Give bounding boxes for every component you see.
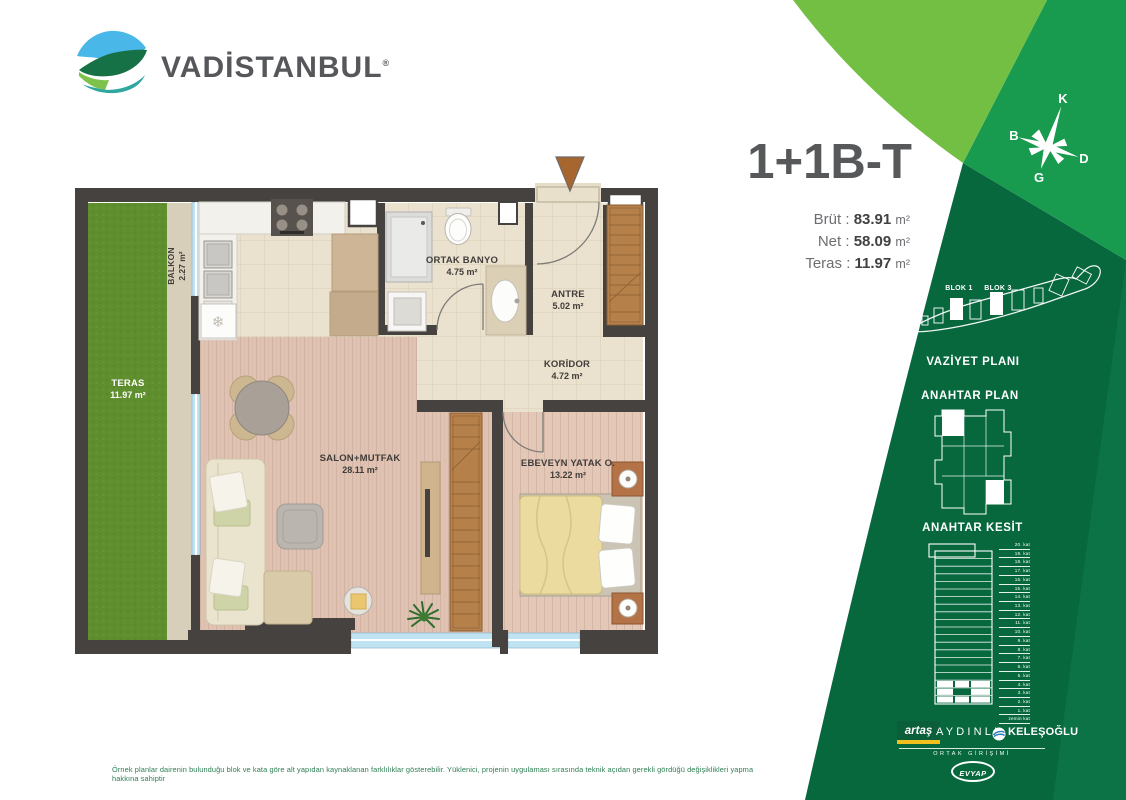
evyap-logo: EVYAP (951, 761, 995, 782)
kesit-floor-list: 20. kat19. kat18. kat17. kat16. kat15. k… (999, 541, 1030, 724)
kesit-floor-row: 7. kat (999, 654, 1030, 663)
wall (645, 188, 658, 654)
kesit-floor-row: 14. kat (999, 593, 1030, 602)
joint-venture-label: ORTAK GİRİŞİMİ (899, 751, 1045, 757)
compass-label-north: K (1058, 91, 1068, 106)
wall (188, 630, 351, 654)
wall (75, 188, 88, 654)
sink-basin-inner (207, 244, 229, 265)
room-area-bedroom: 13.22 m² (550, 470, 586, 480)
sink-basin-inner (207, 274, 229, 295)
wall (492, 400, 503, 647)
room-area: 2.27 m² (177, 251, 187, 280)
kesit-floor-row: 8. kat (999, 646, 1030, 655)
lamp-center (626, 477, 631, 482)
site-building (1034, 288, 1043, 303)
coffee-table (277, 504, 323, 549)
shaft-box (499, 202, 517, 224)
lamp-center (626, 606, 631, 611)
key-plan-unit-highlight (986, 480, 1004, 504)
key-section-tower (925, 540, 1000, 710)
kitchen-cabinet (332, 234, 378, 291)
kesit-floor-row: 5. kat (999, 672, 1030, 681)
unit-metrics: Brüt : 83.91 m² Net : 58.09 m² Teras : 1… (690, 209, 910, 275)
stove (271, 199, 313, 236)
kesit-floor-row: 17. kat (999, 567, 1030, 576)
room-name-teras: TERAS (111, 378, 144, 389)
bath-sink (492, 280, 519, 322)
burner (297, 205, 308, 216)
highlight-block (971, 681, 990, 687)
disclaimer-text: Örnek planlar dairenin bulunduğu blok ve… (112, 765, 760, 783)
metric-unit: m² (895, 235, 910, 249)
room-area-banyo: 4.75 m² (446, 267, 477, 277)
site-plan-title: VAZİYET PLANI (908, 356, 1038, 368)
highlight-block (937, 689, 953, 695)
burner (277, 205, 288, 216)
kesit-floor-row: 9. kat (999, 637, 1030, 646)
kesit-floor-row: 19. kat (999, 550, 1030, 559)
highlight-block (955, 696, 969, 702)
metric-label: Brüt : (814, 211, 850, 228)
kesit-floor-row: 20. kat (999, 541, 1030, 550)
compass-label-south: G (1034, 170, 1044, 185)
room-name-antre: ANTRE (551, 289, 585, 300)
plant-pot (420, 613, 429, 622)
stove-knobs (280, 231, 304, 234)
washing-machine-door (394, 298, 421, 325)
tower-highlight-floors (937, 681, 990, 703)
room-name-banyo: ORTAK BANYO (426, 255, 498, 266)
highlight-block (955, 681, 969, 687)
kitchen-cabinet (330, 292, 378, 336)
room-name-koridor: KORİDOR (544, 359, 590, 370)
tower-floor-lines (935, 559, 992, 696)
key-plan-core (964, 446, 986, 476)
room-name-salon: SALON+MUTFAK (320, 453, 401, 464)
burner (297, 220, 308, 231)
side-table-tray (351, 594, 366, 609)
kesit-floor-row: 4. kat (999, 681, 1030, 690)
site-boundary (908, 266, 1100, 332)
metric-row-brut: Brüt : 83.91 m² (690, 209, 910, 231)
kesit-floor-row: 1. kat (999, 707, 1030, 716)
sofa-chaise (264, 571, 312, 624)
wall (417, 400, 503, 412)
wall (603, 325, 645, 337)
brochure-page: VADİSTANBUL® (0, 0, 1126, 800)
kelesoglu-logo: KELEŞOĞLU (1008, 726, 1078, 738)
metric-row-net: Net : 58.09 m² (690, 231, 910, 253)
metric-value: 58.09 (854, 233, 892, 250)
kesit-floor-row: 2. kat (999, 698, 1030, 707)
tv (425, 489, 430, 557)
faucet (515, 299, 520, 304)
highlight-block (937, 696, 953, 702)
aydinli-logo: AYDINLI (936, 726, 1000, 738)
site-plan-drawing (898, 262, 1116, 354)
joint-venture-divider (899, 748, 1045, 749)
room-area-teras: 11.97 m² (110, 390, 146, 400)
artas-logo-text: artaş (905, 725, 933, 737)
room-label-balkon: BALKON 2.27 m² (166, 247, 187, 285)
kesit-floor-row: 11. kat (999, 619, 1030, 628)
kelesoglu-globe-icon (992, 727, 1006, 741)
metric-label: Teras : (805, 255, 850, 272)
kesit-floor-row: 18. kat (999, 558, 1030, 567)
highlight-block (971, 696, 990, 702)
bed-pillow (598, 504, 635, 545)
dining-table (235, 381, 289, 435)
kesit-floor-row: 6. kat (999, 663, 1030, 672)
key-plan-unit-highlight (942, 410, 964, 436)
shaft-box (349, 199, 377, 226)
bed-pillow (598, 548, 635, 589)
shower-drain (421, 221, 425, 225)
compass-label-west: B (1009, 128, 1018, 143)
tv-console (421, 462, 440, 594)
kesit-floor-row: 13. kat (999, 602, 1030, 611)
highlight-block (971, 689, 990, 695)
compass-label-east: D (1079, 151, 1088, 166)
metric-row-teras: Teras : 11.97 m² (690, 253, 910, 275)
unit-type-title: 1+1B-T (740, 138, 912, 187)
wall (543, 400, 645, 412)
kesit-floor-row: 10. kat (999, 628, 1030, 637)
room-area-salon: 28.11 m² (342, 465, 378, 475)
compass-star (1011, 97, 1091, 179)
metric-unit: m² (895, 213, 910, 227)
evyap-logo-text: EVYAP (959, 769, 986, 778)
site-building-blok1 (950, 298, 963, 320)
site-building (1072, 267, 1091, 284)
room-area-koridor: 4.72 m² (551, 371, 582, 381)
entrance-door-slab (537, 187, 599, 202)
shower-tray (391, 217, 427, 277)
site-building-blok3 (990, 292, 1003, 315)
bed-blanket (520, 496, 602, 594)
key-section-title: ANAHTAR KESİT (905, 522, 1040, 534)
salon-wardrobe (450, 413, 482, 631)
highlight-block (937, 681, 953, 687)
kesit-floor-row: 16. kat (999, 576, 1030, 585)
kesit-floor-row: 12. kat (999, 611, 1030, 620)
room-area-antre: 5.02 m² (552, 301, 583, 311)
site-building (1012, 290, 1024, 310)
burner (277, 220, 288, 231)
artas-logo: artaş (897, 721, 940, 740)
teras-floor (87, 203, 167, 645)
wall (191, 555, 200, 630)
metric-value: 83.91 (854, 211, 892, 228)
artas-logo-underline (897, 740, 940, 744)
key-plan-title: ANAHTAR PLAN (905, 390, 1035, 402)
wall (580, 630, 658, 654)
wall (603, 205, 607, 325)
room-name-bedroom: EBEVEYN YATAK O. (521, 458, 615, 469)
key-plan-drawing (928, 406, 1018, 518)
toilet (445, 214, 471, 245)
kesit-floor-row: zemin kat (999, 715, 1030, 724)
snowflake-icon: ❄ (212, 314, 225, 331)
metric-value: 11.97 (855, 255, 892, 272)
sofa-pillow (209, 471, 248, 512)
sofa-pillow (209, 558, 246, 597)
compass-icon: K B D G (1005, 90, 1115, 195)
kesit-floor-row: 3. kat (999, 689, 1030, 698)
kesit-floor-row: 15. kat (999, 585, 1030, 594)
wall (75, 640, 191, 654)
metric-label: Net : (818, 233, 850, 250)
room-name: BALKON (166, 247, 176, 285)
